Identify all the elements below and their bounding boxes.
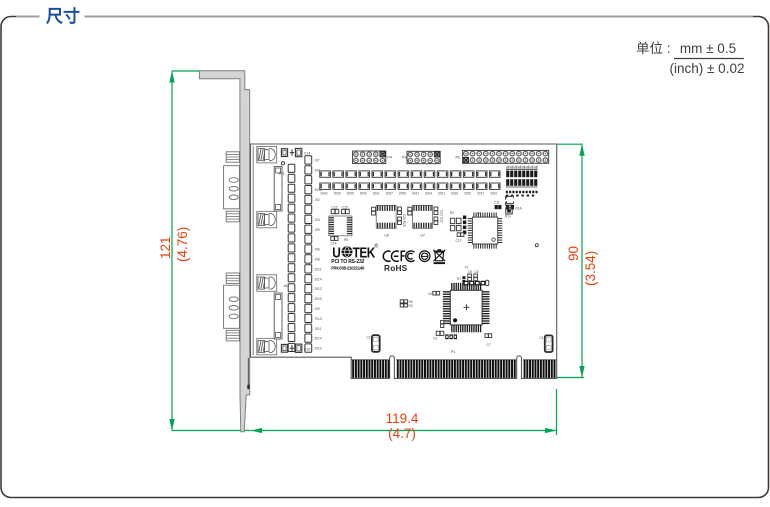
svg-text:U9: U9	[477, 212, 481, 216]
svg-text:2010: 2010	[315, 297, 322, 301]
svg-text:C26 R23: C26 R23	[402, 214, 406, 227]
svg-text:C12: C12	[456, 239, 462, 243]
svg-text:2012: 2012	[315, 287, 322, 291]
svg-text:R2: R2	[450, 211, 454, 215]
svg-text:PCI TO RS-232: PCI TO RS-232	[331, 259, 364, 265]
svg-text:®: ®	[375, 243, 379, 250]
svg-text:C7: C7	[487, 343, 491, 347]
svg-text:2016: 2016	[451, 192, 458, 196]
svg-text:C1: C1	[540, 336, 544, 340]
svg-text:C6: C6	[428, 292, 432, 296]
svg-text:RoHS: RoHS	[384, 263, 408, 273]
svg-text:C9: C9	[468, 270, 472, 274]
svg-text:R7: R7	[457, 277, 461, 281]
svg-text:P2: P2	[456, 156, 461, 160]
svg-text:2009: 2009	[347, 192, 354, 196]
svg-text:Y1: Y1	[465, 266, 469, 270]
svg-text:2042: 2042	[321, 192, 328, 196]
svg-text:2017: 2017	[477, 192, 484, 196]
svg-text:2011: 2011	[315, 267, 322, 271]
svg-text:C21 C22: C21 C22	[440, 210, 444, 223]
svg-text:2005: 2005	[399, 192, 406, 196]
svg-text:(inch) ± 0.02: (inch) ± 0.02	[670, 61, 745, 76]
svg-text:P4: P4	[387, 156, 392, 160]
svg-text:JP1: JP1	[279, 172, 285, 176]
svg-text:119.4: 119.4	[386, 411, 419, 426]
svg-text:C14: C14	[304, 152, 310, 156]
svg-text:7013: 7013	[315, 317, 322, 321]
svg-text:2022: 2022	[464, 192, 471, 196]
svg-text:2012: 2012	[315, 347, 322, 351]
svg-text:2014: 2014	[315, 337, 322, 341]
svg-text:C2: C2	[367, 336, 371, 340]
svg-text:C16: C16	[332, 205, 338, 209]
svg-text:121: 121	[158, 236, 173, 259]
svg-text:2024: 2024	[425, 192, 432, 196]
svg-text:U6: U6	[385, 233, 389, 237]
svg-text:R1A: R1A	[516, 207, 523, 211]
svg-text:2029: 2029	[334, 192, 341, 196]
svg-text:(3.54): (3.54)	[583, 251, 598, 286]
svg-text:J02: J02	[315, 198, 320, 202]
svg-text:C11: C11	[494, 201, 500, 205]
svg-text:2010: 2010	[490, 192, 497, 196]
svg-text:P1: P1	[451, 350, 455, 354]
svg-text:(4.7): (4.7)	[388, 426, 416, 441]
svg-text:R5: R5	[344, 238, 348, 242]
svg-text:2014: 2014	[315, 277, 322, 281]
svg-text:R3: R3	[409, 304, 413, 308]
svg-text:C3: C3	[433, 337, 437, 341]
svg-text:P3: P3	[402, 156, 407, 160]
svg-text:单位 :: 单位 :	[636, 41, 671, 56]
svg-text:J06: J06	[315, 248, 320, 252]
svg-text:J04: J04	[315, 168, 320, 172]
svg-text:J08: J08	[315, 258, 320, 262]
svg-text:2000: 2000	[360, 192, 367, 196]
svg-text:J05: J05	[315, 228, 320, 232]
svg-text:C15: C15	[342, 205, 348, 209]
svg-text:C8: C8	[475, 270, 479, 274]
svg-text:C10: C10	[304, 347, 310, 351]
svg-text:(4.76): (4.76)	[175, 227, 190, 262]
svg-text:90: 90	[566, 246, 581, 261]
svg-text:P/N:038-21021140: P/N:038-21021140	[331, 265, 365, 270]
svg-text:J04: J04	[315, 218, 320, 222]
svg-text:mm ± 0.5: mm ± 0.5	[680, 41, 736, 56]
svg-text:2027: 2027	[386, 192, 393, 196]
svg-text:J09: J09	[315, 307, 320, 311]
svg-text:2021: 2021	[373, 192, 380, 196]
svg-text:2041: 2041	[412, 192, 419, 196]
svg-text:R1+: R1+	[505, 215, 511, 219]
svg-text:U7: U7	[421, 233, 425, 237]
svg-text:2011: 2011	[315, 327, 322, 331]
svg-text:尺寸: 尺寸	[46, 6, 80, 26]
svg-text:J07: J07	[315, 159, 320, 163]
svg-text:2021: 2021	[438, 192, 445, 196]
